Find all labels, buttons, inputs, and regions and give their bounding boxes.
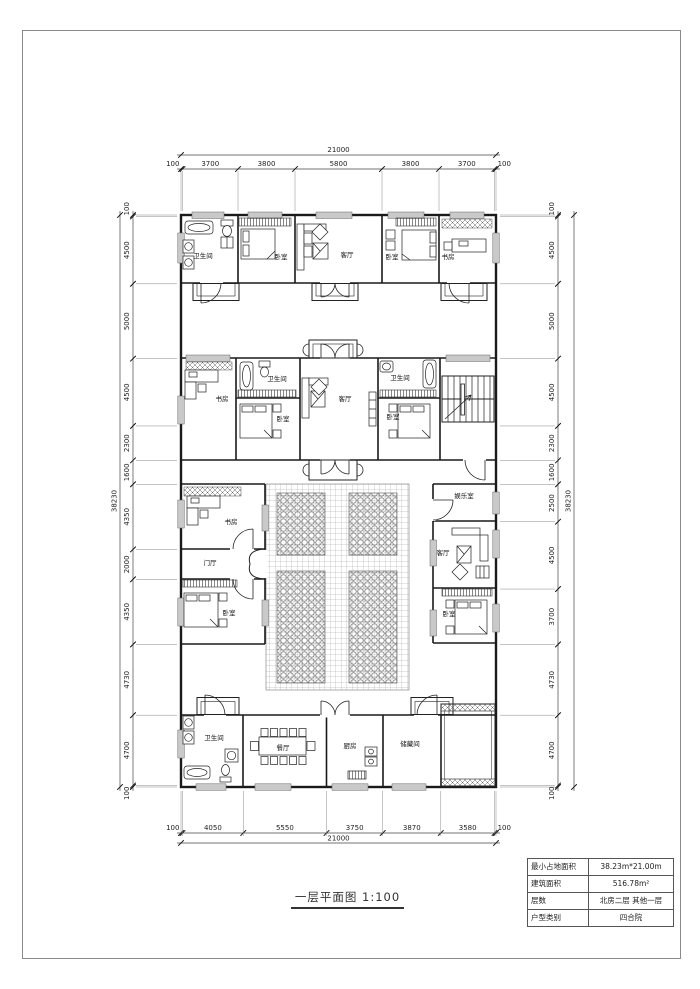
dim-label: 3800	[258, 160, 276, 168]
dim-label: 100	[498, 160, 511, 168]
dim-label: 4700	[123, 741, 131, 759]
desk-icon	[444, 239, 486, 252]
dim-total-label: 38230	[565, 490, 573, 512]
dim-label: 5000	[123, 312, 131, 330]
dim-label: 100	[123, 202, 131, 215]
table-row: 户型类别 四合院	[528, 909, 673, 926]
toilet-icon	[220, 765, 231, 783]
dim-label: 4500	[548, 546, 556, 564]
table-value: 北房二层 其他一层	[589, 893, 673, 909]
dim-label: 100	[166, 824, 179, 832]
garage-bay	[441, 704, 495, 786]
room-label-bathroom-mid-2: 卫生间	[390, 373, 410, 382]
bed-icon	[240, 404, 272, 438]
dim-label: 3750	[346, 824, 364, 832]
room-label-bedroom-north-2: 卧室	[386, 252, 400, 261]
courtyard-paving	[266, 484, 409, 690]
dim-label: 2500	[548, 494, 556, 512]
room-label-kitchen-south: 厨房	[344, 741, 357, 750]
room-label-entry-hall-west: 门厅	[204, 558, 218, 567]
dim-label: 4730	[548, 671, 556, 689]
wardrobe	[238, 390, 296, 397]
room-label-recreation-east: 娱乐室	[454, 491, 474, 500]
table-label: 建筑面积	[528, 876, 589, 892]
tv-cabinet-icon	[313, 243, 328, 259]
room-label-bathroom-south: 卫生间	[204, 733, 224, 742]
table-row: 建筑面积 516.78m²	[528, 875, 673, 892]
room-label-living-east: 客厅	[437, 548, 451, 557]
door-arc	[465, 460, 485, 480]
info-table: 最小占地面积 38.23m*21.00m 建筑面积 516.78m² 层数 北房…	[527, 858, 674, 927]
bed-icon	[455, 600, 487, 634]
dim-label: 3700	[201, 160, 219, 168]
dim-label: 100	[166, 160, 179, 168]
room-label-living-north: 客厅	[341, 250, 355, 259]
dim-label: 4500	[548, 241, 556, 259]
toilet-icon	[221, 220, 233, 237]
planting-bed	[277, 571, 325, 683]
planting-bed	[277, 493, 325, 555]
title-text: 一层平面图	[295, 890, 358, 904]
dim-label: 4350	[123, 508, 131, 526]
entry-porch-south	[303, 460, 363, 480]
room-label-study-mid: 书房	[216, 394, 229, 403]
dim-label: 4500	[548, 383, 556, 401]
dim-label: 100	[548, 787, 556, 800]
dim-label: 4730	[123, 671, 131, 689]
bathtub-icon	[423, 360, 436, 388]
planting-bed	[349, 493, 397, 555]
dim-label: 1600	[548, 463, 556, 481]
table-label: 层数	[528, 893, 589, 909]
dim-label: 5800	[330, 160, 348, 168]
planting-bed	[349, 571, 397, 683]
dim-total-label: 21000	[327, 835, 349, 843]
sink-icon	[183, 716, 194, 729]
wardrobe	[183, 580, 237, 587]
dim-total-label: 38230	[111, 490, 119, 512]
stove-icon	[365, 747, 377, 766]
table-value: 38.23m*21.00m	[589, 859, 673, 875]
dim-label: 4500	[123, 383, 131, 401]
table-label: 最小占地面积	[528, 859, 589, 875]
staircase	[442, 376, 494, 422]
room-label-bedroom-mid-1: 卧室	[277, 414, 291, 423]
porch-step	[441, 284, 487, 301]
dim-label: 5550	[276, 824, 294, 832]
wardrobe	[396, 218, 436, 226]
table-row: 最小占地面积 38.23m*21.00m	[528, 859, 673, 875]
dim-label: 100	[548, 202, 556, 215]
room-label-study-west: 书房	[225, 517, 238, 526]
room-label-bedroom-east: 卧室	[443, 609, 457, 618]
room-label-study-north: 书房	[442, 252, 455, 261]
dresser-icon	[386, 230, 395, 250]
dim-label: 4350	[123, 603, 131, 621]
dim-label: 2000	[123, 555, 131, 573]
dim-label: 2300	[548, 434, 556, 452]
nightstand-icon	[389, 404, 397, 438]
counter-icon	[348, 771, 366, 779]
dim-label: 4050	[204, 824, 222, 832]
porch-step	[193, 284, 239, 301]
wardrobe	[380, 390, 436, 397]
title-scale: 1:100	[362, 890, 400, 904]
bed-icon	[402, 230, 436, 260]
dim-label: 4500	[123, 241, 131, 259]
room-label-dining-south: 餐厅	[277, 743, 291, 752]
bed-icon	[241, 229, 275, 259]
washer-icon	[225, 749, 238, 762]
bathtub-icon	[240, 362, 253, 390]
desk-icon	[185, 370, 218, 399]
dim-label: 3870	[403, 824, 421, 832]
door-arc	[233, 529, 253, 549]
sink-icon	[183, 731, 194, 744]
entry-porch-north	[303, 340, 363, 358]
side-table-icon	[476, 566, 489, 578]
room-label-bedroom-west: 卧室	[223, 608, 237, 617]
dim-label: 3800	[402, 160, 420, 168]
dim-label: 100	[498, 824, 511, 832]
cabinet-icon	[369, 392, 376, 426]
bathtub-icon	[185, 221, 213, 234]
room-label-bedroom-mid-2: 卧室	[387, 412, 401, 421]
bed-icon	[398, 404, 430, 438]
room-label-bathroom-mid-1: 卫生间	[267, 374, 287, 383]
table-icon	[452, 564, 468, 580]
drawing-title: 一层平面图 1:100	[280, 886, 415, 909]
table-value: 516.78m²	[589, 876, 673, 892]
room-label-bathroom-north: 卫生间	[193, 251, 213, 260]
dim-label: 1600	[123, 463, 131, 481]
dim-label: 100	[123, 787, 131, 800]
dim-label: 2300	[123, 434, 131, 452]
dim-total-label: 21000	[327, 146, 349, 154]
dim-label: 3700	[458, 160, 476, 168]
room-label-storage-south: 储藏间	[400, 739, 420, 748]
table-value: 四合院	[589, 910, 673, 926]
table-row: 层数 北房二层 其他一层	[528, 892, 673, 909]
drawing-sheet: 2100010037003800580038003700100210001004…	[0, 0, 700, 989]
room-label-bedroom-north-1: 卧室	[275, 252, 289, 261]
dim-label: 5000	[548, 312, 556, 330]
tv-cabinet-icon	[457, 546, 471, 563]
floor-plan-svg: 2100010037003800580038003700100210001004…	[0, 0, 700, 989]
table-label: 户型类别	[528, 910, 589, 926]
wardrobe	[442, 589, 492, 596]
cabinet-icon	[221, 237, 233, 248]
bed-icon	[184, 593, 218, 627]
desk-icon	[187, 496, 220, 525]
dim-label: 3700	[548, 608, 556, 626]
door-arc	[433, 500, 453, 520]
dim-label: 3580	[459, 824, 477, 832]
dim-label: 4700	[548, 741, 556, 759]
room-label-living-mid: 客厅	[339, 394, 353, 403]
wardrobe	[239, 218, 291, 226]
bathtub-icon	[184, 766, 210, 779]
toilet-icon	[380, 361, 393, 372]
